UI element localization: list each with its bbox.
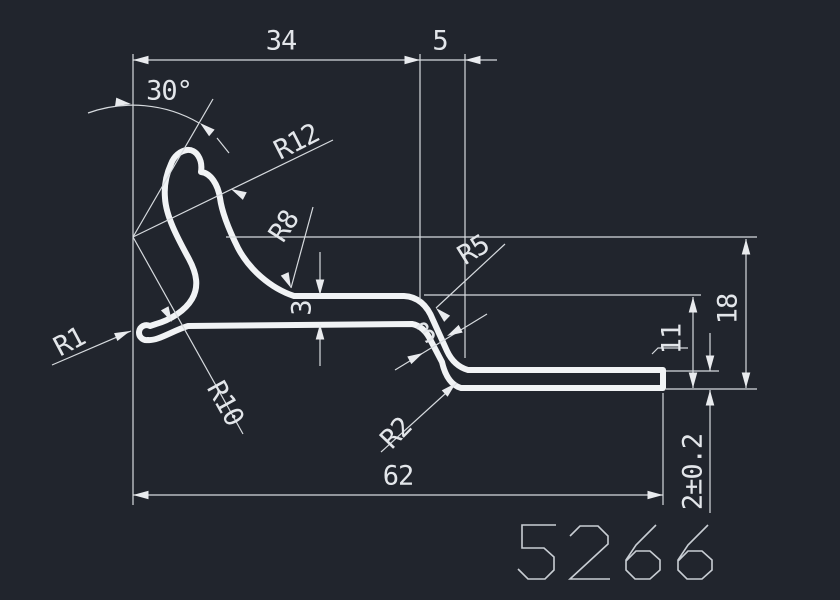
arrow-3step-lower (407, 349, 425, 364)
dim-label-r5: R5 (452, 229, 494, 271)
dim-label-r12: R12 (269, 118, 324, 166)
arrow-11-top (689, 297, 698, 313)
dim-label-18: 18 (713, 294, 744, 325)
cad-drawing-canvas: 34530°R12R8R5R1R10R23311182±0.262 (0, 0, 840, 600)
dim-label-62: 62 (383, 461, 414, 492)
part-number-digit (626, 525, 660, 579)
arrow-r12 (229, 185, 247, 200)
dim-label-3-mid: 3 (287, 300, 318, 315)
extension-lines (133, 54, 757, 505)
arrow-r1 (114, 327, 132, 341)
dim-label-5: 5 (432, 26, 447, 57)
dim-label-r8: R8 (263, 205, 306, 247)
arrow-34-right (405, 56, 421, 65)
profile-outline (139, 150, 663, 388)
technical-drawing: 34530°R12R8R5R1R10R23311182±0.262 (0, 0, 840, 600)
arrow-3mid-top (316, 280, 325, 296)
part-number-digit (570, 526, 610, 579)
dimension-labels: 34530°R12R8R5R1R10R23311182±0.262 (49, 26, 744, 511)
dim-label-30deg: 30° (146, 76, 192, 107)
part-number (518, 525, 712, 579)
dim-label-r10: R10 (200, 376, 249, 431)
arrow-arc-left (115, 98, 132, 109)
angle-arc-30 (88, 105, 199, 123)
arrow-62-left (133, 491, 149, 500)
dim-label-11: 11 (657, 324, 688, 355)
arrow-62-right (648, 491, 664, 500)
angle-arrow-tail (217, 138, 229, 153)
dim-label-2tol: 2±0.2 (678, 434, 709, 510)
arrow-18-top (742, 239, 751, 255)
part-number-digit (678, 525, 712, 579)
arrow-11-bottom (689, 373, 698, 389)
arrowheads (114, 56, 750, 500)
arrow-18-bottom (742, 373, 751, 389)
arrow-5-right (465, 56, 481, 65)
dim-label-r1: R1 (49, 321, 90, 363)
arrow-2tol-top (706, 356, 715, 372)
profile-shape (139, 150, 663, 388)
arrow-2tol-bottom (706, 390, 715, 406)
dim-label-34: 34 (266, 26, 297, 57)
arrow-34-left (133, 56, 149, 65)
dim-label-r2: R2 (375, 412, 418, 455)
part-number-digit (518, 525, 556, 579)
